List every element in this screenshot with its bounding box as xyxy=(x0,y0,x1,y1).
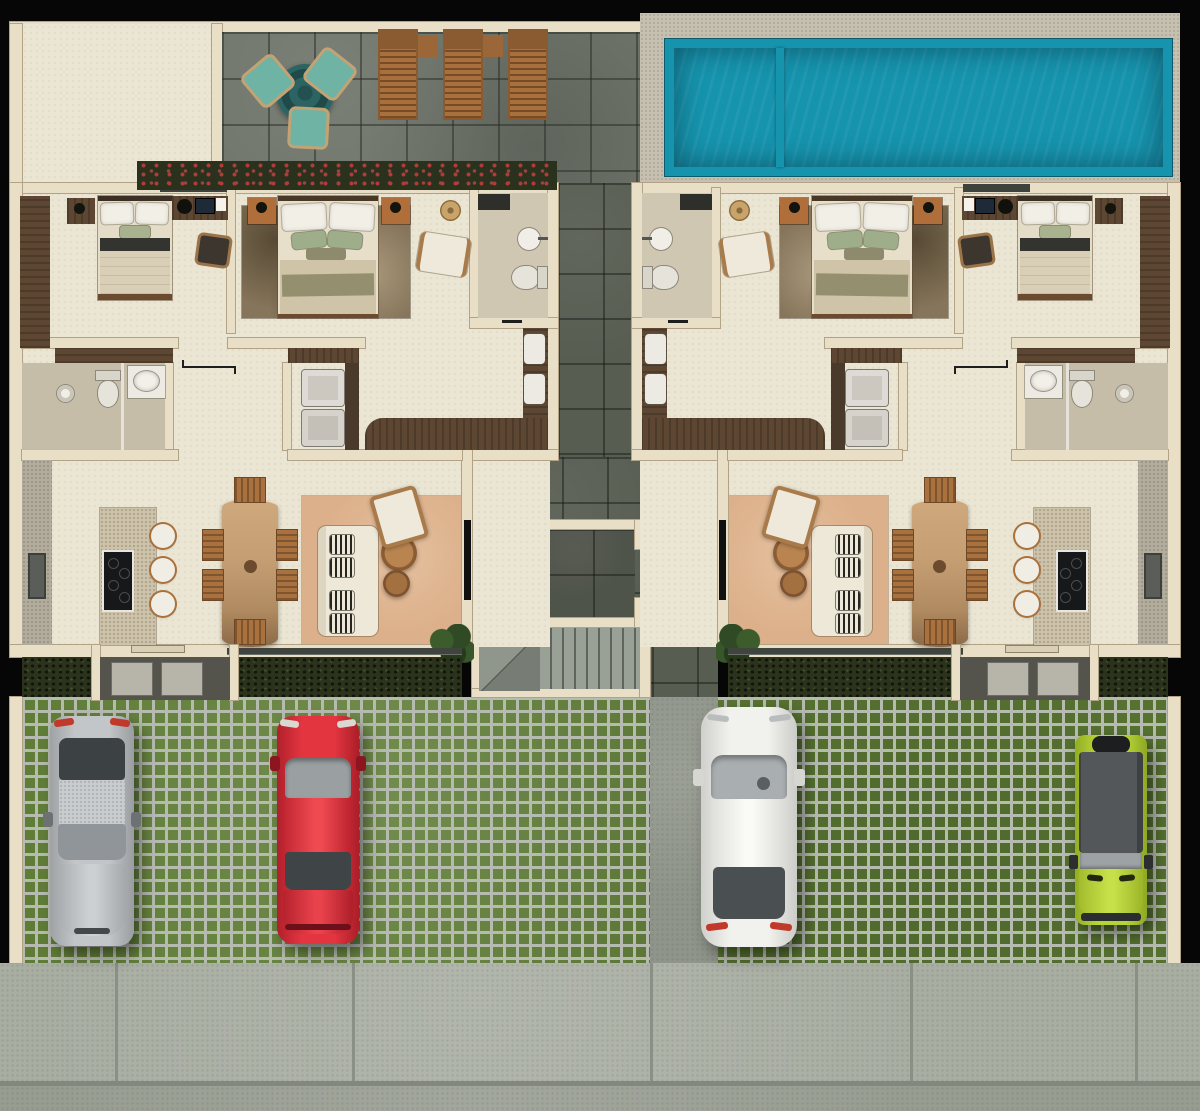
sidewalk-joint xyxy=(910,963,913,1083)
windshield xyxy=(58,824,126,860)
pillow xyxy=(1057,202,1090,224)
floor-plan-render xyxy=(0,0,1200,1111)
striped-pillow xyxy=(836,535,860,554)
wall-laundry-left xyxy=(899,363,907,450)
spare-tire xyxy=(1092,736,1130,753)
toilet xyxy=(652,266,678,289)
sliding-glass-door xyxy=(227,648,462,654)
washer xyxy=(846,370,888,406)
bathroom-floor xyxy=(478,193,548,318)
laundry-counter xyxy=(831,348,902,363)
sage-pillow xyxy=(827,231,862,250)
wall-bath2-right xyxy=(1017,363,1025,450)
bathroom-floor xyxy=(642,193,712,318)
wardrobe xyxy=(20,196,50,348)
tall-cabinet xyxy=(345,363,359,450)
wall-living-top xyxy=(22,450,178,460)
car-silver xyxy=(50,716,134,946)
basin-round xyxy=(650,228,672,250)
boundary-wall-right xyxy=(1168,697,1180,963)
door-swing-mark xyxy=(954,366,956,374)
dining-chair xyxy=(967,570,987,600)
table-lamp xyxy=(789,202,800,213)
coffee-table xyxy=(780,570,807,597)
basin-oval xyxy=(134,371,159,391)
kitchen-sink xyxy=(1144,553,1162,599)
cooktop xyxy=(104,552,132,610)
headboard xyxy=(1018,196,1092,201)
bed-footboard xyxy=(98,294,172,300)
pillow xyxy=(863,203,908,231)
sage-pillow xyxy=(863,230,898,249)
accent-cushion xyxy=(1040,226,1070,238)
basin-round xyxy=(518,228,540,250)
desk-chair xyxy=(194,232,233,270)
burner xyxy=(108,558,119,569)
folded-throw xyxy=(1020,238,1090,251)
striped-pillow xyxy=(330,558,354,577)
kitchen-sink xyxy=(28,553,46,599)
bar-stool xyxy=(151,558,175,582)
dining-chair xyxy=(925,478,955,502)
side-mirror xyxy=(356,756,366,771)
side-mirror xyxy=(1144,855,1153,869)
bar-stool xyxy=(1015,592,1039,616)
pool xyxy=(665,39,1172,176)
pillow xyxy=(1022,202,1055,224)
windshield xyxy=(1080,853,1142,869)
elevator-shaft-floor xyxy=(548,529,635,618)
bar-stool xyxy=(151,524,175,548)
toilet-tank xyxy=(643,267,652,288)
cafe-chair xyxy=(290,109,327,147)
bath-vanity-counter xyxy=(1017,348,1135,363)
front-hedge xyxy=(22,657,92,697)
pool-water xyxy=(674,48,1163,167)
hood xyxy=(58,864,126,936)
striped-pillow xyxy=(330,614,354,633)
bar-stool xyxy=(1015,524,1039,548)
cooktop xyxy=(1058,552,1086,610)
door-swing-mark xyxy=(1006,360,1008,368)
lounger-side-table xyxy=(483,35,503,57)
toilet-tank xyxy=(96,371,120,380)
dining-chair xyxy=(203,570,223,600)
car-roof xyxy=(59,780,125,824)
dining-chair xyxy=(925,620,955,644)
bed-single xyxy=(98,196,172,300)
pillow xyxy=(815,203,860,231)
sidewalk-joint xyxy=(650,963,653,1083)
striped-pillow xyxy=(330,591,354,610)
unit-a xyxy=(10,178,558,700)
wall-cap xyxy=(632,450,728,460)
unit-b xyxy=(632,178,1180,700)
burner xyxy=(119,568,130,579)
flower-hedge xyxy=(137,161,557,190)
dining-chair xyxy=(203,530,223,560)
door-swing-mark xyxy=(234,366,236,374)
tv xyxy=(464,520,471,600)
toilet xyxy=(1072,381,1092,407)
pillow xyxy=(281,203,326,231)
laptop xyxy=(976,199,994,213)
basket xyxy=(729,200,750,221)
burner xyxy=(1060,568,1071,579)
taillight-bar xyxy=(285,924,351,930)
cream-terrace xyxy=(22,24,212,183)
window-strip xyxy=(963,184,1030,192)
table-lamp xyxy=(390,202,401,213)
lumbar-cushion xyxy=(306,248,346,260)
wall-living-top xyxy=(288,450,462,460)
bed-footboard xyxy=(812,314,912,318)
lounger-headrest xyxy=(510,31,546,49)
door-swing-mark xyxy=(954,366,1008,368)
dining-chair xyxy=(235,478,265,502)
laundry-counter xyxy=(288,348,359,363)
bedroom-armchair xyxy=(718,231,774,277)
headlight xyxy=(280,719,300,729)
wall-living-top xyxy=(728,450,902,460)
corridor-upper xyxy=(558,183,632,457)
faucet xyxy=(642,237,652,240)
door-mat xyxy=(162,663,202,695)
basin-oval xyxy=(1031,371,1056,391)
car-roof xyxy=(285,798,351,852)
headlight xyxy=(707,714,730,723)
toilet-tank xyxy=(1070,371,1094,380)
lounger-headrest xyxy=(380,31,416,49)
papers xyxy=(216,198,226,211)
headlight xyxy=(769,714,792,723)
storage-niche xyxy=(478,194,510,210)
l-desk xyxy=(642,418,825,450)
door-swing-mark xyxy=(182,366,236,368)
bed-single xyxy=(1018,196,1092,300)
shower-drain xyxy=(57,385,74,402)
bath-vanity-counter xyxy=(55,348,173,363)
dryer xyxy=(846,410,888,446)
tv xyxy=(719,520,726,600)
papers xyxy=(964,198,974,211)
side-mirror xyxy=(1069,855,1078,869)
door-mat xyxy=(988,663,1028,695)
front-hedge xyxy=(1098,657,1168,697)
lounger-side-table xyxy=(418,35,438,57)
porch-side-wall xyxy=(1090,645,1098,700)
toilet-tank xyxy=(538,267,547,288)
headboard xyxy=(98,196,172,201)
porch-side-wall xyxy=(92,645,100,700)
bed-footboard xyxy=(278,314,378,318)
door-mat xyxy=(112,663,152,695)
wall-row-divider xyxy=(825,338,962,348)
door-mat xyxy=(1038,663,1078,695)
side-mirror xyxy=(270,756,280,771)
rear-window xyxy=(713,867,785,919)
table-knot xyxy=(244,560,257,573)
taillight xyxy=(706,922,729,932)
sliding-glass-door xyxy=(728,648,963,654)
door-swing-mark xyxy=(502,320,522,323)
dining-chair xyxy=(967,530,987,560)
folded-throw xyxy=(100,238,170,251)
table-lamp xyxy=(923,202,934,213)
headlight xyxy=(337,719,357,729)
accent-cushion xyxy=(120,226,150,238)
sidewalk-joint xyxy=(1135,963,1138,1083)
suv-roof xyxy=(1079,752,1143,853)
dining-chair xyxy=(277,530,297,560)
headboard xyxy=(278,196,378,201)
entry-door xyxy=(1006,646,1058,652)
wall-living-top xyxy=(1012,450,1168,460)
wall-bath-left xyxy=(712,188,720,328)
vessel-basin xyxy=(524,334,545,364)
striped-pillow xyxy=(836,558,860,577)
grass-paver-parking xyxy=(22,697,1168,963)
bed-footboard xyxy=(1018,294,1092,300)
pillow xyxy=(136,202,169,224)
sidewalk-joint xyxy=(352,963,355,1083)
toilet xyxy=(98,381,118,407)
wardrobe xyxy=(1140,196,1170,348)
entry-door xyxy=(132,646,184,652)
boundary-wall-left xyxy=(10,697,22,963)
table-lamp xyxy=(1105,203,1116,214)
storage-niche xyxy=(680,194,712,210)
bar-stool xyxy=(1015,558,1039,582)
bed-double xyxy=(278,196,378,318)
vessel-basin xyxy=(645,334,666,364)
striped-pillow xyxy=(330,535,354,554)
wall-laundry-left xyxy=(283,363,291,450)
sage-pillow xyxy=(291,230,326,249)
taillight xyxy=(110,718,131,728)
table-lamp xyxy=(74,203,85,214)
pool-divider-wall xyxy=(776,48,784,167)
burner xyxy=(1060,592,1071,603)
desk-bag xyxy=(177,199,192,214)
porch-side-wall xyxy=(952,645,960,700)
pillow xyxy=(329,203,374,231)
sidewalk-joint xyxy=(115,963,118,1083)
dining-chair xyxy=(277,570,297,600)
dryer xyxy=(302,410,344,446)
basket xyxy=(440,200,461,221)
taillight xyxy=(770,922,793,932)
door-swing-mark xyxy=(668,320,688,323)
duvet xyxy=(100,251,170,294)
tall-cabinet xyxy=(831,363,845,450)
lounger-headrest xyxy=(445,31,481,49)
headboard xyxy=(812,196,912,201)
shower-drain xyxy=(1116,385,1133,402)
l-desk xyxy=(365,418,548,450)
burner xyxy=(1071,558,1082,569)
grille xyxy=(74,928,110,934)
terrace-wall xyxy=(212,24,222,183)
dining-chair xyxy=(235,620,265,644)
wall-row-divider xyxy=(228,338,365,348)
burner xyxy=(119,592,130,603)
wall-bath2-right xyxy=(165,363,173,450)
side-mirror xyxy=(693,769,704,786)
door-swing-mark xyxy=(182,360,184,368)
wall-cap xyxy=(462,450,558,460)
side-mirror xyxy=(794,769,805,786)
shower-glass xyxy=(1066,363,1069,450)
faucet xyxy=(538,237,548,240)
table-knot xyxy=(933,560,946,573)
throw-blanket xyxy=(282,273,374,297)
steering-wheel xyxy=(757,777,770,790)
throw-blanket xyxy=(816,273,908,297)
lumbar-cushion xyxy=(844,248,884,260)
striped-pillow xyxy=(836,591,860,610)
rear-window xyxy=(59,738,125,780)
car-red xyxy=(277,716,359,944)
windshield xyxy=(285,758,351,798)
front-bumper xyxy=(1081,913,1141,921)
car-lime-suv xyxy=(1075,735,1147,925)
bedroom-armchair xyxy=(415,231,471,277)
car-white xyxy=(701,707,797,947)
striped-pillow xyxy=(836,614,860,633)
front-hedge xyxy=(238,657,462,697)
laptop xyxy=(196,199,214,213)
car-roof xyxy=(711,799,787,867)
road xyxy=(0,1086,1200,1111)
sage-pillow xyxy=(327,231,362,250)
sidewalk xyxy=(0,963,1200,1083)
side-mirror xyxy=(131,812,141,827)
desk-bag xyxy=(998,199,1013,214)
dining-chair xyxy=(893,570,913,600)
table-lamp xyxy=(256,202,267,213)
rear-window xyxy=(285,852,351,890)
duvet xyxy=(1020,251,1090,294)
washer xyxy=(302,370,344,406)
pillow xyxy=(101,202,134,224)
bar-stool xyxy=(151,592,175,616)
burner xyxy=(108,580,119,591)
wall-bath-left xyxy=(470,188,478,328)
desk-chair xyxy=(957,232,996,270)
taillight xyxy=(54,718,75,728)
porch-side-wall xyxy=(230,645,238,700)
windshield xyxy=(711,755,787,799)
vessel-basin xyxy=(524,374,545,404)
burner xyxy=(1071,580,1082,591)
terrace-left-wall xyxy=(10,24,22,183)
shower-glass xyxy=(121,363,124,450)
front-hedge xyxy=(728,657,952,697)
side-mirror xyxy=(43,812,53,827)
dining-chair xyxy=(893,530,913,560)
toilet xyxy=(512,266,538,289)
vessel-basin xyxy=(645,374,666,404)
coffee-table xyxy=(383,570,410,597)
bed-double xyxy=(812,196,912,318)
